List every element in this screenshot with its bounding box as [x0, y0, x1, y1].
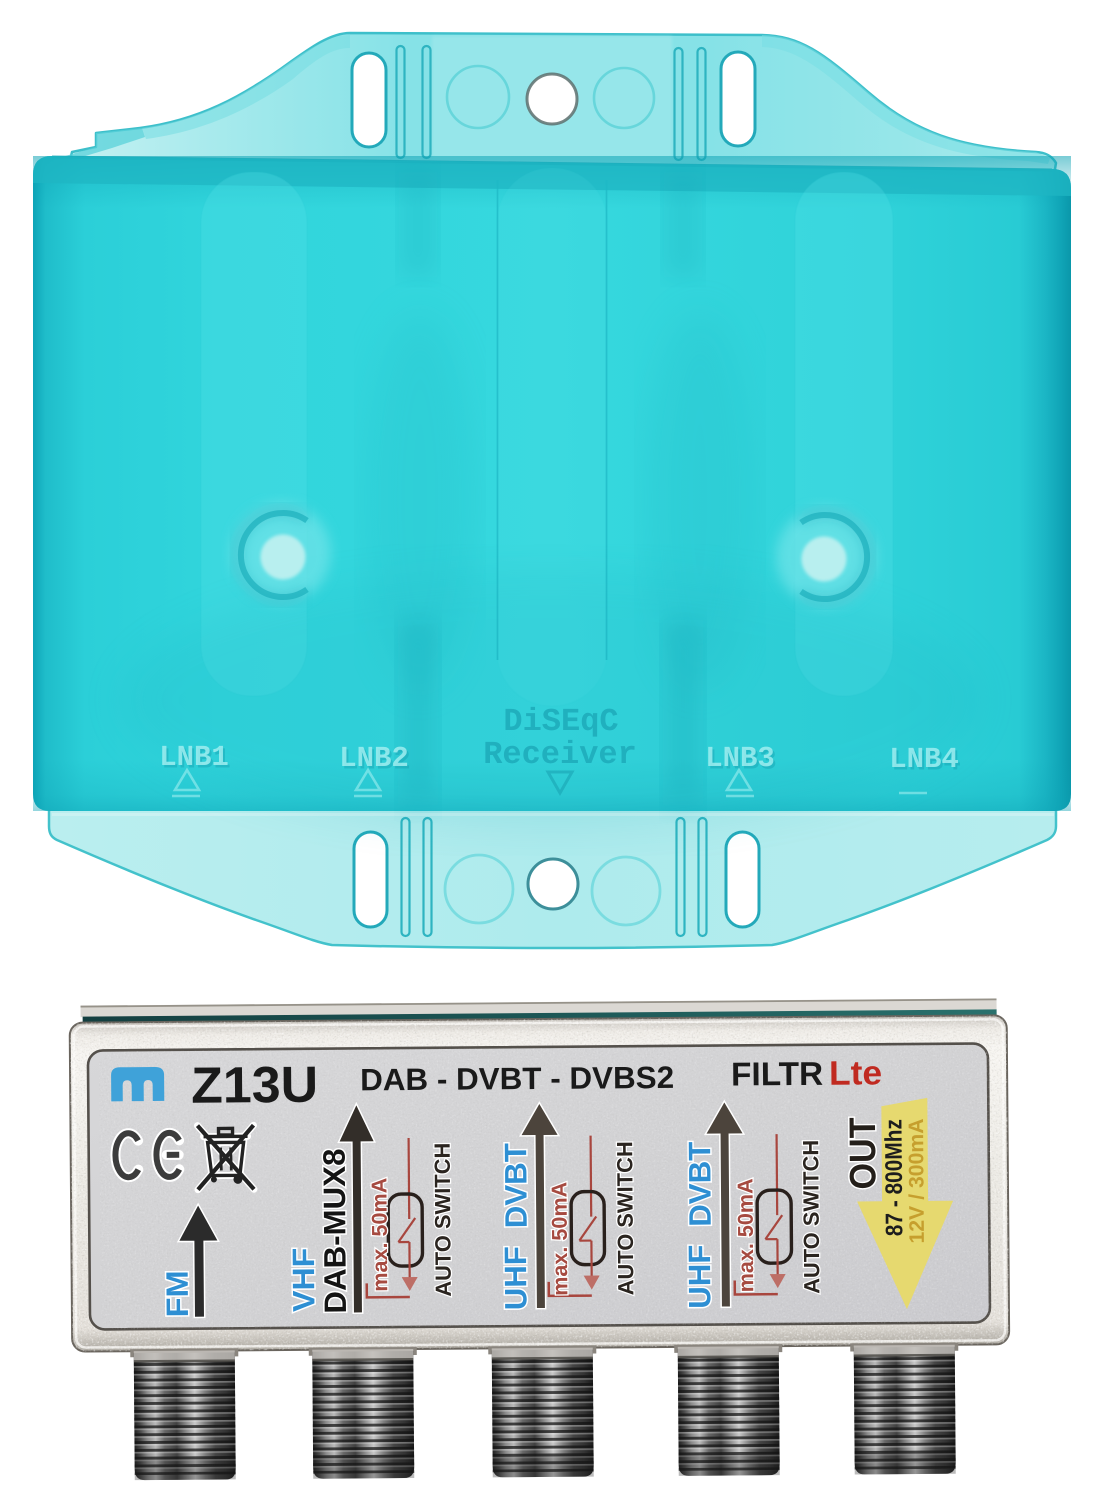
svg-text:LNB1: LNB1: [159, 741, 229, 774]
svg-text:DAB - DVBT - DVBS2: DAB - DVBT - DVBS2: [360, 1060, 674, 1097]
svg-text:AUTO SWITCH: AUTO SWITCH: [430, 1143, 456, 1297]
svg-text:LNB4: LNB4: [889, 743, 959, 776]
svg-text:UHF: UHF: [498, 1246, 534, 1310]
svg-text:DiSEqC: DiSEqC: [503, 703, 618, 740]
svg-text:LNB2: LNB2: [339, 742, 409, 775]
svg-text:DAB-MUX8: DAB-MUX8: [317, 1148, 353, 1313]
svg-text:AUTO SWITCH: AUTO SWITCH: [612, 1141, 638, 1295]
svg-text:DVBT: DVBT: [498, 1143, 534, 1228]
svg-text:FM: FM: [160, 1270, 195, 1317]
svg-text:Receiver: Receiver: [483, 736, 637, 773]
svg-text:12V / 300mA: 12V / 300mA: [905, 1118, 929, 1243]
svg-text:FILTR: FILTR: [731, 1055, 823, 1093]
svg-text:max. 50mA: max. 50mA: [367, 1178, 392, 1292]
svg-text:UHF: UHF: [682, 1245, 718, 1309]
svg-text:Z13U: Z13U: [191, 1056, 318, 1114]
svg-text:Lte: Lte: [829, 1054, 882, 1092]
svg-text:max. 50mA: max. 50mA: [547, 1182, 572, 1296]
svg-text:OUT: OUT: [842, 1117, 884, 1190]
svg-text:VHF: VHF: [286, 1248, 322, 1312]
svg-text:AUTO SWITCH: AUTO SWITCH: [798, 1140, 824, 1294]
svg-text:max. 50mA: max. 50mA: [733, 1178, 758, 1292]
svg-text:DVBT: DVBT: [682, 1142, 718, 1227]
